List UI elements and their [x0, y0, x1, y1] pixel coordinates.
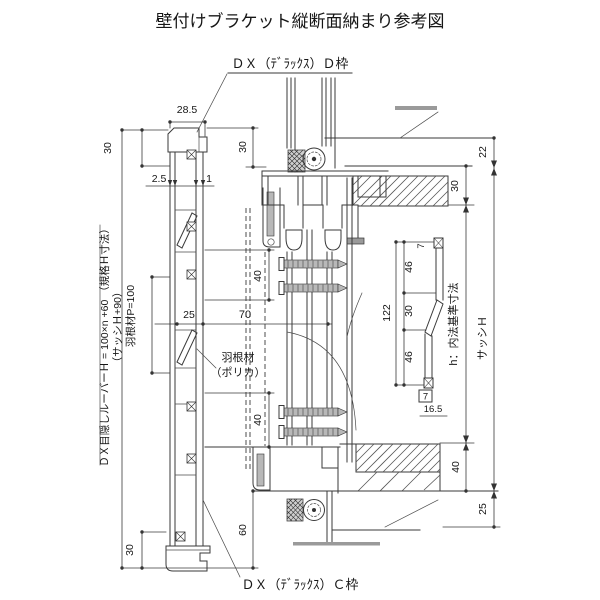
- inner-standard-label: h：内法基準寸法: [446, 282, 460, 365]
- dim-detail-total: 122: [381, 304, 393, 322]
- blade-material-label-2: （ポリカ）: [211, 366, 266, 379]
- top-frame-label: ＤＸ（ﾃﾞﾗｯｸｽ）Ｄ枠: [231, 56, 348, 71]
- top-fastener-circle: [303, 148, 325, 170]
- dim-bottom-left: 30: [124, 544, 136, 556]
- swing-arc-2: [347, 293, 362, 337]
- top-sealant-block: [288, 150, 305, 172]
- dim-thickness: 2.5: [152, 173, 167, 185]
- wall-hatch-bottom: [356, 444, 440, 472]
- dim-upper-span: 40: [252, 270, 264, 282]
- blade-pitch-label: 羽根材P=100: [124, 285, 137, 347]
- bottom-frame-callout: ＤＸ（ﾃﾞﾗｯｸｽ）Ｃ枠: [203, 500, 359, 592]
- left-dimensions: 28.5 30 30 2.5 1 ＤＸ目隠しルーバーＨ = 100×n +60 …: [98, 104, 258, 570]
- dim-detail-bottom: 7: [423, 392, 428, 403]
- dim-depth: 25: [183, 309, 195, 321]
- dim-right-offset-top: 22: [477, 146, 489, 158]
- screw-4: [279, 426, 347, 439]
- dim-bottom-center: 60: [237, 524, 249, 536]
- dim-cap-width: 28.5: [177, 104, 198, 116]
- bottom-sealant-block: [287, 499, 303, 521]
- bracket-profile-detail: 7 16.5 122 46 30 46 7: [381, 238, 447, 416]
- louver-assembly: [166, 128, 210, 571]
- dim-offset: 70: [239, 309, 251, 321]
- blade-material-label-1: 羽根材: [222, 350, 255, 364]
- dim-right-bottom: 40: [450, 461, 462, 473]
- dim-right-offset-bottom: 25: [477, 503, 489, 515]
- dim-detail-base: 16.5: [424, 404, 443, 415]
- louver-top-cap: [168, 128, 207, 152]
- dim-detail-lower: 46: [403, 351, 415, 363]
- bottom-frame-label: ＤＸ（ﾃﾞﾗｯｸｽ）Ｃ枠: [241, 577, 358, 592]
- sash-relation-label: （サッシＨ+90）: [112, 287, 124, 368]
- right-dimensions: 22 30 h：内法基準寸法 サッシＨ 40 25: [440, 136, 500, 528]
- drawing-title: 壁付けブラケット縦断面納まり参考図: [156, 11, 445, 31]
- bottom-fastener-circle: [304, 500, 325, 521]
- dim-detail-top: 7: [416, 243, 427, 248]
- roller-left: [286, 230, 302, 250]
- dim-detail-mid: 30: [403, 305, 415, 317]
- drawing-page: 壁付けブラケット縦断面納まり参考図 ＤＸ（ﾃﾞﾗｯｸｽ）Ｄ枠: [0, 0, 600, 600]
- screw-3: [279, 406, 347, 419]
- wall-hatch-top: [352, 176, 448, 206]
- sash-head-section: [262, 171, 388, 205]
- blade-material-callout: 羽根材 （ポリカ）: [197, 349, 266, 379]
- wall-bracket-upper-arm: [263, 188, 280, 247]
- dim-right-top: 30: [449, 180, 461, 192]
- roller-right: [325, 230, 341, 250]
- screw-2: [279, 282, 347, 295]
- technical-drawing: 壁付けブラケット縦断面納まり参考図 ＤＸ（ﾃﾞﾗｯｸｽ）Ｄ枠: [0, 0, 600, 600]
- top-wall-section: [325, 106, 493, 244]
- dim-top-center: 30: [237, 141, 249, 153]
- wall-bracket-lower-arm: [253, 448, 270, 490]
- screw-1: [279, 258, 347, 271]
- dim-lip: 1: [206, 173, 212, 185]
- louver-height-formula: ＤＸ目隠しルーバーＨ = 100×n +60 （規格Ｈ寸法）: [98, 223, 111, 467]
- dim-lower-span: 40: [252, 414, 264, 426]
- leader-line: [197, 74, 227, 132]
- louver-blade-lower: [177, 330, 197, 365]
- sash-height-label: サッシＨ: [476, 316, 489, 360]
- top-frame-callout: ＤＸ（ﾃﾞﾗｯｸｽ）Ｄ枠: [197, 56, 352, 132]
- dim-top-left: 30: [102, 142, 114, 154]
- bracket-foot-pad: [347, 238, 364, 244]
- dim-detail-upper: 46: [403, 261, 415, 273]
